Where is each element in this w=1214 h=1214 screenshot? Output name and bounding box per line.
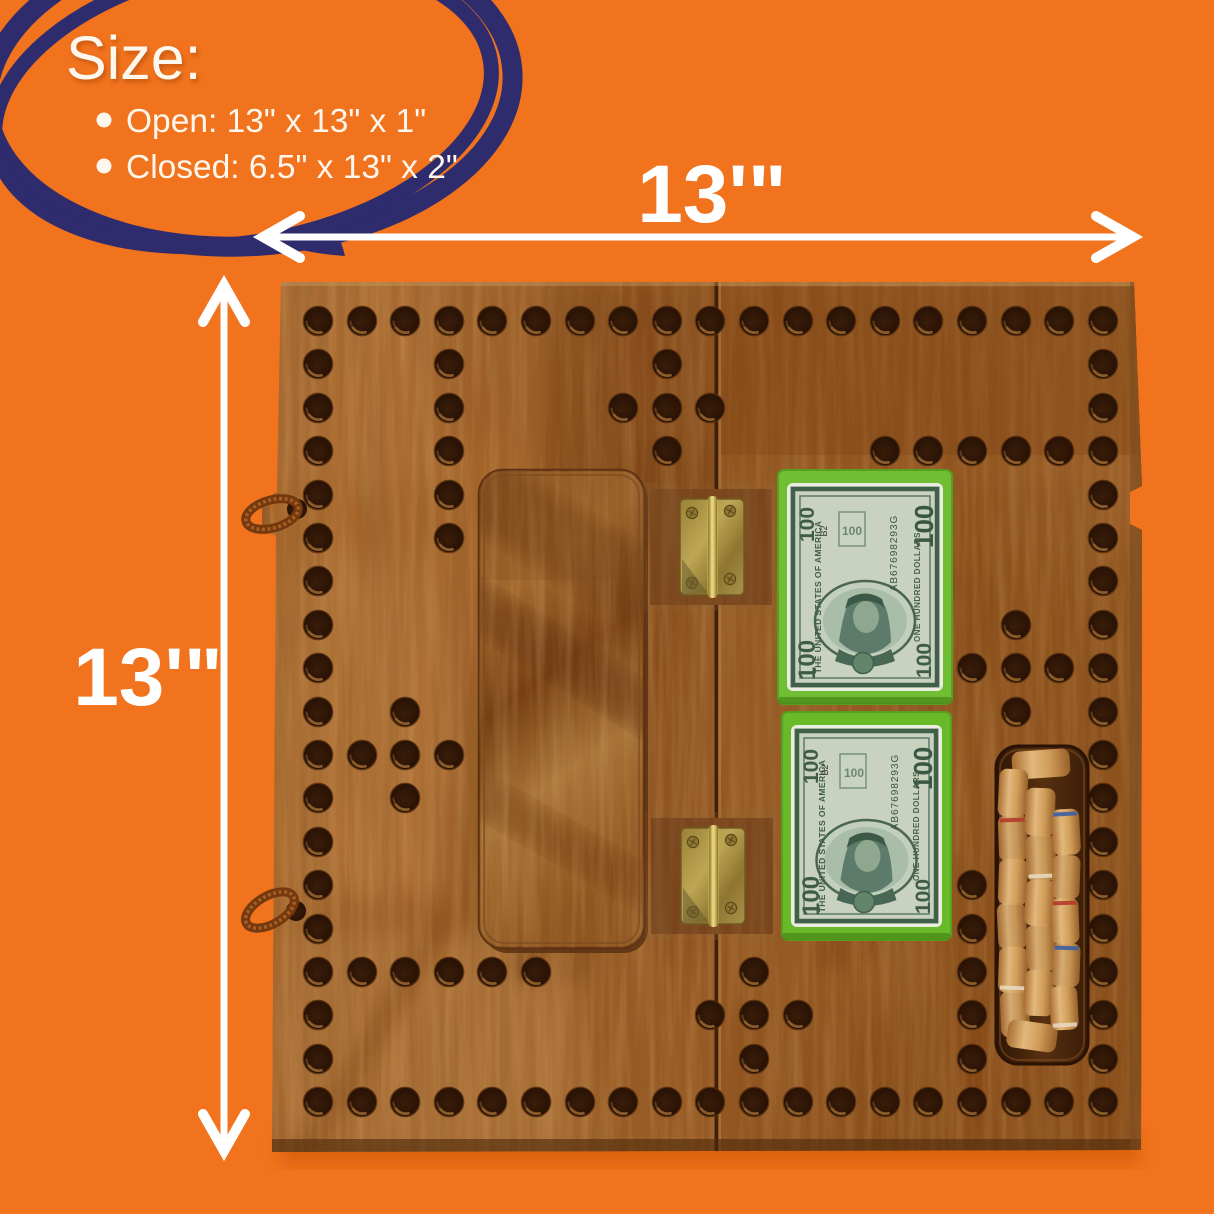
svg-text:100: 100 [842,524,862,538]
svg-text:AB67698293G: AB67698293G [889,515,900,592]
svg-text:Closed: 6.5" x 13" x 2": Closed: 6.5" x 13" x 2" [126,149,458,186]
svg-text:ONE HUNDRED DOLLARS: ONE HUNDRED DOLLARS [913,532,922,642]
svg-text:13'": 13'" [637,149,787,240]
svg-text:100: 100 [913,643,936,678]
svg-text:AB67698293G: AB67698293G [890,754,901,831]
svg-text:13'": 13'" [73,632,223,723]
svg-text:B2: B2 [820,764,830,775]
svg-text:ONE HUNDRED DOLLARS: ONE HUNDRED DOLLARS [912,771,921,881]
svg-text:100: 100 [912,879,935,914]
svg-text:THE UNITED STATES OF AMERICA: THE UNITED STATES OF AMERICA [817,760,827,913]
svg-text:Size:: Size: [66,24,202,92]
svg-text:B2: B2 [819,525,829,536]
svg-text:100: 100 [844,766,864,780]
svg-text:THE UNITED STATES OF AMERICA: THE UNITED STATES OF AMERICA [813,521,823,674]
svg-text:Open: 13" x 13" x 1": Open: 13" x 13" x 1" [126,103,426,140]
